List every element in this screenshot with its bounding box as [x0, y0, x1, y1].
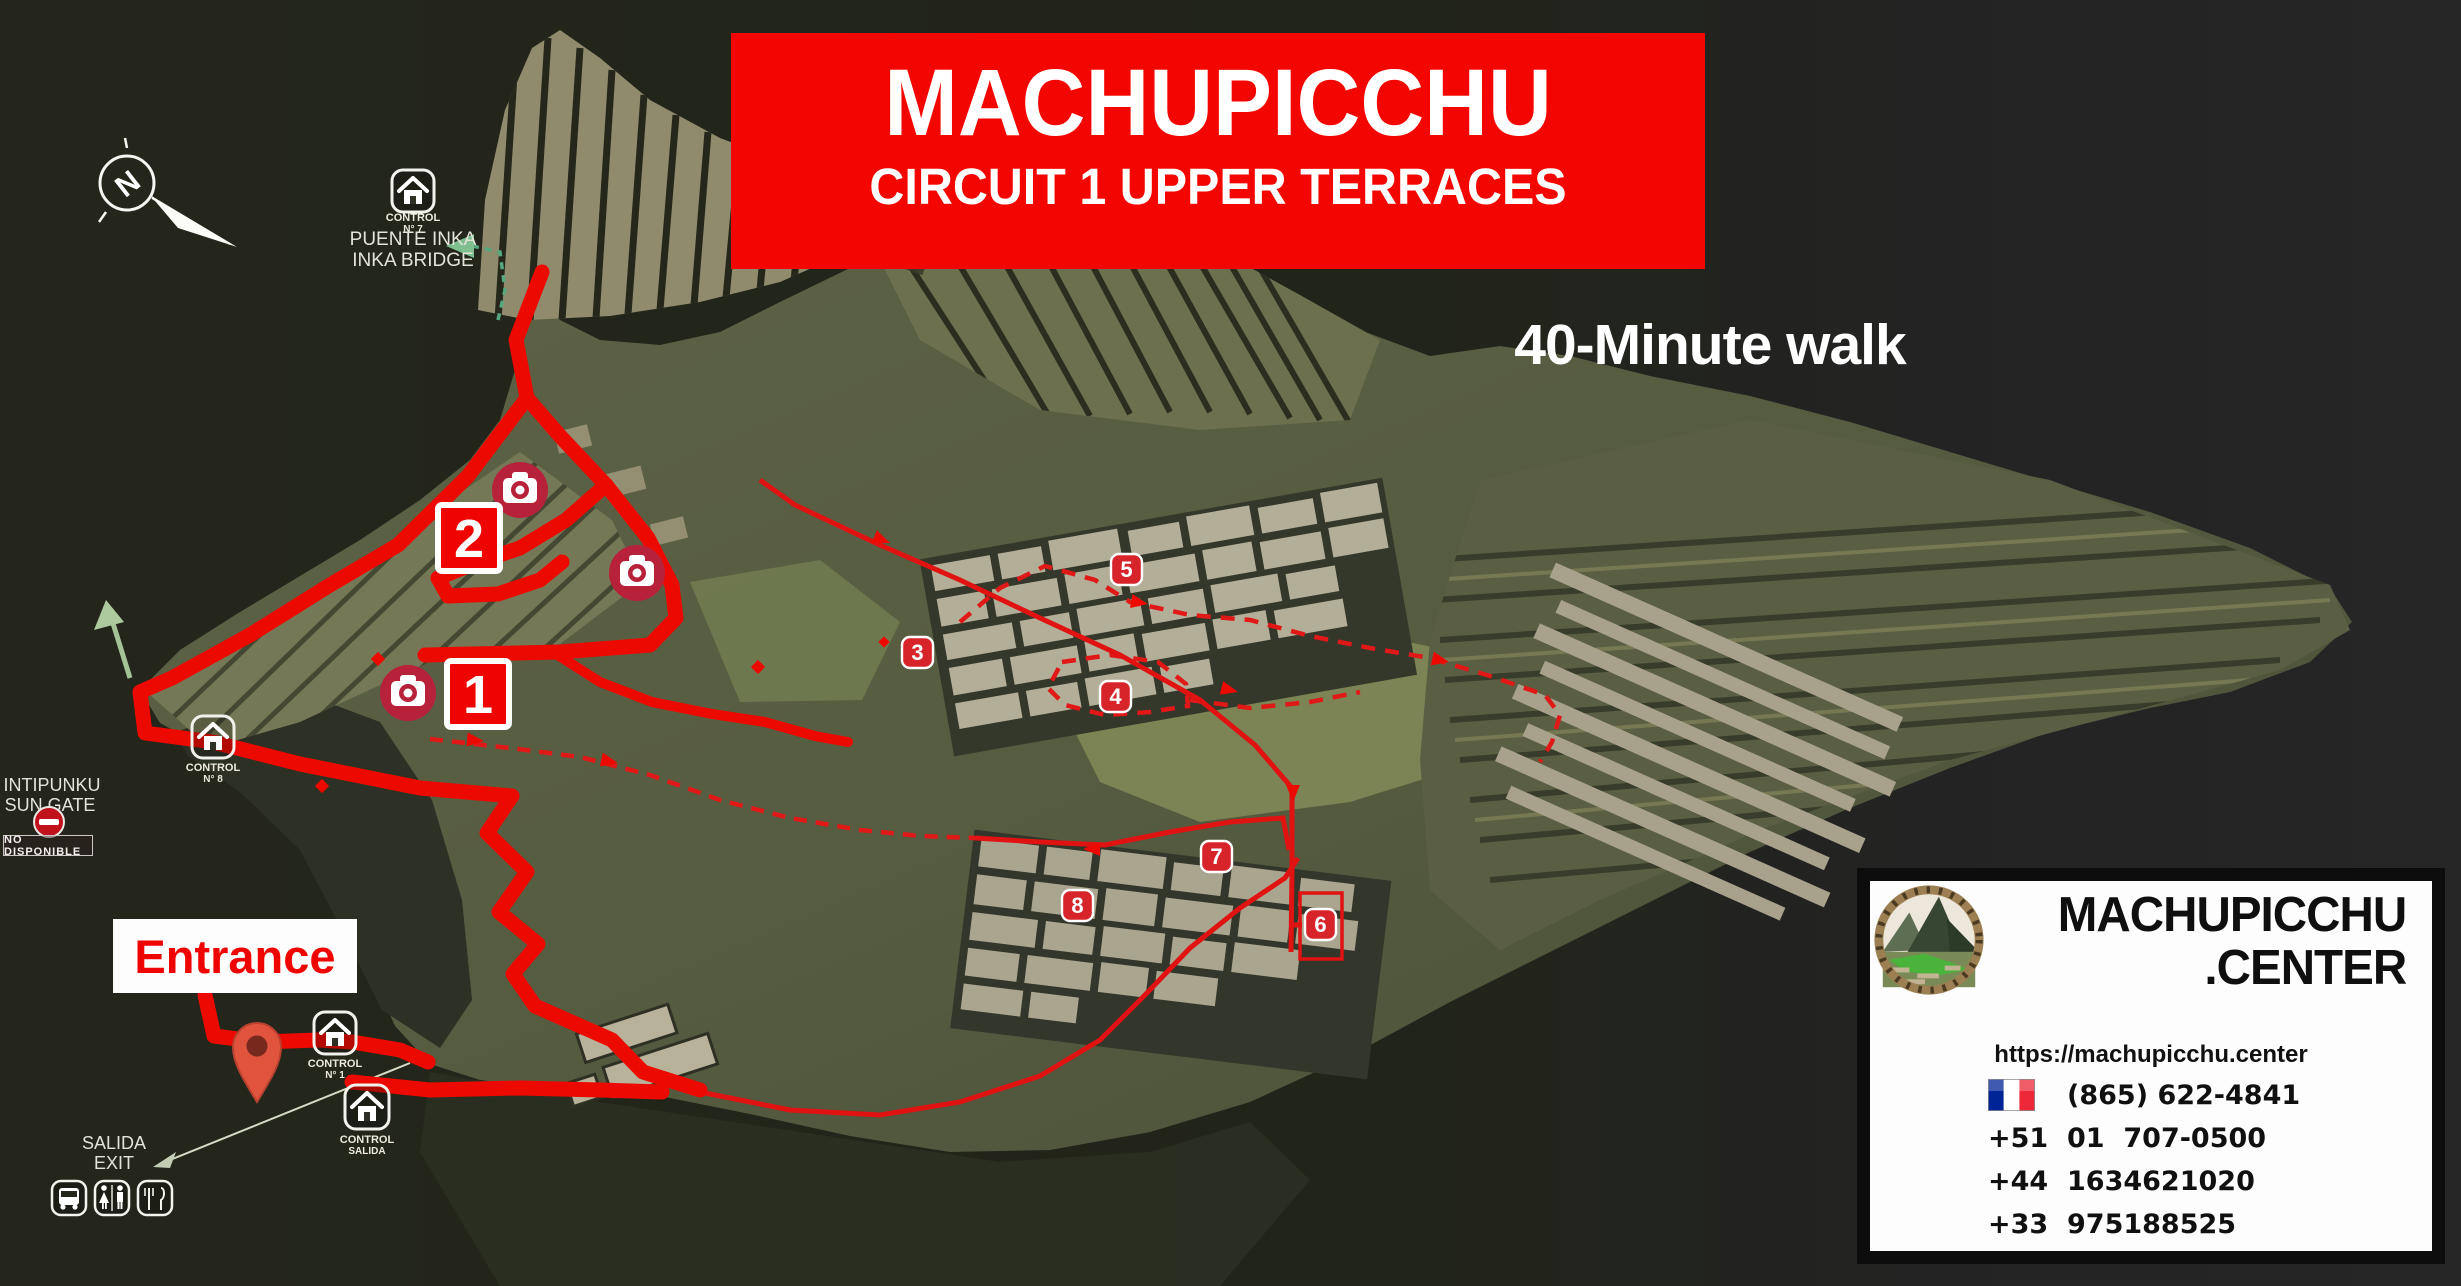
entrance-label: Entrance: [134, 929, 335, 984]
puente-inka-label: PUENTE INKA: [350, 229, 477, 250]
machupicchu-center-logo-icon: [1870, 881, 1988, 999]
page-title: MACHUPICCHU: [765, 53, 1671, 153]
phone-number: +51 01 707-0500: [1988, 1123, 2266, 1154]
svg-text:8: 8: [1071, 893, 1083, 918]
svg-text:4: 4: [1109, 684, 1122, 709]
contact-info-box: MACHUPICCHU .CENTER https://machupicchu.…: [1857, 868, 2445, 1264]
svg-text:CONTROL: CONTROL: [386, 212, 441, 224]
svg-text:CONTROL: CONTROL: [186, 762, 241, 774]
title-banner: MACHUPICCHU CIRCUIT 1 UPPER TERRACES: [731, 33, 1705, 269]
not-available-badge: NO DISPONIBLE: [3, 835, 93, 856]
stop-marker-8[interactable]: 8: [1062, 890, 1093, 921]
phone-row-uk[interactable]: +44 1634621020: [1988, 1165, 2300, 1198]
stop-marker-7[interactable]: 7: [1201, 841, 1232, 872]
facility-icons: [52, 1181, 172, 1215]
svg-text:3: 3: [911, 640, 923, 665]
svg-text:7: 7: [1210, 844, 1222, 869]
machupicchu-circuit-map: N CONTROL N° 7 CONTROL N° 8 CONTROL N° 1…: [0, 0, 2461, 1286]
camera-icon: [609, 545, 665, 601]
no-entry-icon: [34, 807, 64, 837]
stop-marker-2[interactable]: 2: [438, 505, 500, 571]
svg-text:1: 1: [463, 665, 493, 725]
page-subtitle: CIRCUIT 1 UPPER TERRACES: [755, 159, 1680, 215]
svg-text:CONTROL: CONTROL: [340, 1134, 395, 1146]
svg-text:5: 5: [1120, 557, 1132, 582]
svg-text:N° 8: N° 8: [203, 774, 223, 785]
salida-label: SALIDA: [82, 1133, 146, 1153]
inka-bridge-label: INKA BRIDGE: [352, 250, 473, 271]
phone-number: +44 1634621020: [1988, 1166, 2255, 1197]
france-flag-icon: [1988, 1079, 2035, 1111]
phone-row-peru[interactable]: +51 01 707-0500: [1988, 1122, 2300, 1155]
brand-name: MACHUPICCHU .CENTER: [2058, 889, 2406, 995]
intipunku-label: INTIPUNKU: [3, 775, 100, 795]
exit-label: EXIT: [94, 1153, 134, 1173]
stop-marker-5[interactable]: 5: [1111, 554, 1142, 585]
stop-marker-6[interactable]: 6: [1305, 909, 1336, 940]
walk-time-label: 40-Minute walk: [1480, 312, 1940, 378]
phone-list: +1 (865) 622-4841 +51 01 707-0500: [1988, 1079, 2300, 1251]
bus-icon: [52, 1181, 86, 1215]
restroom-icon: [95, 1181, 129, 1215]
stop-marker-3[interactable]: 3: [902, 637, 933, 668]
stop-marker-4[interactable]: 4: [1100, 681, 1131, 712]
stop-marker-1[interactable]: 1: [447, 661, 509, 727]
entrance-label-box: Entrance: [113, 919, 357, 993]
svg-text:6: 6: [1314, 912, 1326, 937]
restaurant-icon: [138, 1181, 172, 1215]
svg-text:2: 2: [454, 509, 484, 569]
camera-icon: [380, 665, 436, 721]
svg-text:N° 1: N° 1: [325, 1070, 345, 1081]
svg-text:SALIDA: SALIDA: [348, 1146, 385, 1157]
phone-row-france[interactable]: +33 975188525: [1988, 1208, 2300, 1241]
website-link[interactable]: https://machupicchu.center: [1870, 1041, 2432, 1069]
phone-number: +33 975188525: [1988, 1209, 2236, 1240]
svg-text:CONTROL: CONTROL: [308, 1058, 363, 1070]
